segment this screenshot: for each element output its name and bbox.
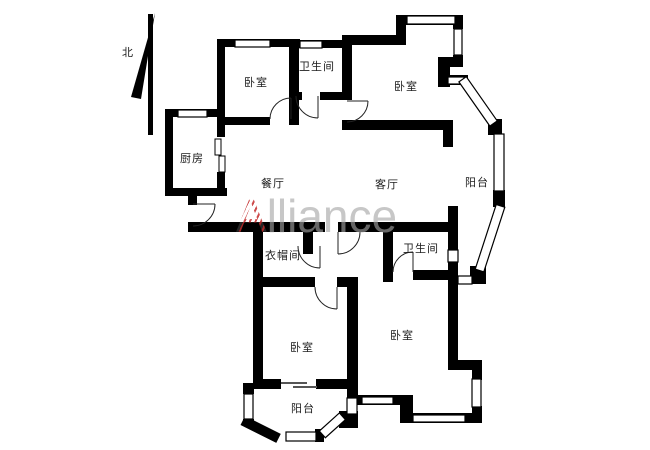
wall [443,120,453,147]
room-label-cloakroom: 衣帽间 [265,248,301,262]
sliding-door-panel [281,382,307,384]
room-label-balcony-east: 阳台 [465,175,489,189]
wall [320,92,352,100]
room-label-balcony-south: 阳台 [291,401,315,415]
window [362,397,393,404]
window [286,432,316,441]
wall [342,35,398,45]
wall [337,277,358,287]
room-label-dining-room: 餐厅 [261,176,285,190]
wall [217,117,270,125]
window [448,250,458,262]
room-label-bedroom-bottom-left: 卧室 [290,340,314,354]
labels-layer: 卧室 卫生间 卧室 厨房 餐厅 客厅 阳台 衣帽间 卫生间 卧室 卧室 阳台 [180,59,489,415]
wall [188,222,325,232]
room-label-kitchen: 厨房 [180,152,204,165]
wall [383,232,393,282]
wall [165,109,173,196]
door-hallway [338,232,360,254]
room-label-living-room: 客厅 [375,177,399,191]
window [472,379,481,407]
window [494,134,504,191]
wall [342,120,453,130]
wall [413,270,458,280]
window [458,276,472,284]
wall [253,379,281,389]
door-bedroom-top-left [270,98,291,119]
wall [493,190,505,207]
window [244,394,253,419]
sliding-door-panel [219,156,225,172]
wall [472,368,482,380]
window [300,41,322,48]
room-label-bedroom-top-left: 卧室 [244,75,268,89]
window [347,398,357,414]
window [235,40,270,47]
window-diagonal [475,204,505,271]
diagonal-wall [241,416,281,443]
door-bedroom-bottom-left [315,287,337,309]
floor-plan: 北 卧室 卫生间 卧室 厨房 餐厅 客厅 阳台 衣帽间 卫生间 卧室 卧室 阳台… [0,0,650,450]
room-label-bathroom-top: 卫生间 [299,59,335,73]
wall [338,222,450,232]
door-bathroom-south [393,252,413,272]
north-arrow-icon [131,13,155,135]
wall [448,206,458,368]
wall [347,277,358,398]
wall [253,232,263,389]
wall [342,40,352,100]
wall [165,188,227,196]
north-arrow-shaft [148,14,153,135]
window-diagonal [459,77,497,126]
wall [243,383,254,394]
room-label-bedroom-top-right: 卧室 [394,79,418,93]
room-label-bathroom-south: 卫生间 [403,241,439,255]
sliding-door-panel [215,139,221,155]
room-label-bedroom-bottom-right: 卧室 [390,328,414,342]
window [178,110,207,117]
window [454,29,462,55]
floor-plan-drawing: 北 卧室 卫生间 卧室 厨房 餐厅 客厅 阳台 衣帽间 卫生间 卧室 卧室 阳台 [0,0,650,450]
door-bedroom-top-right [347,101,368,122]
window [413,415,465,422]
wall [303,232,313,254]
wall [316,379,348,389]
sliding-door-panel [293,386,317,388]
window [407,16,455,24]
north-label: 北 [122,46,134,59]
